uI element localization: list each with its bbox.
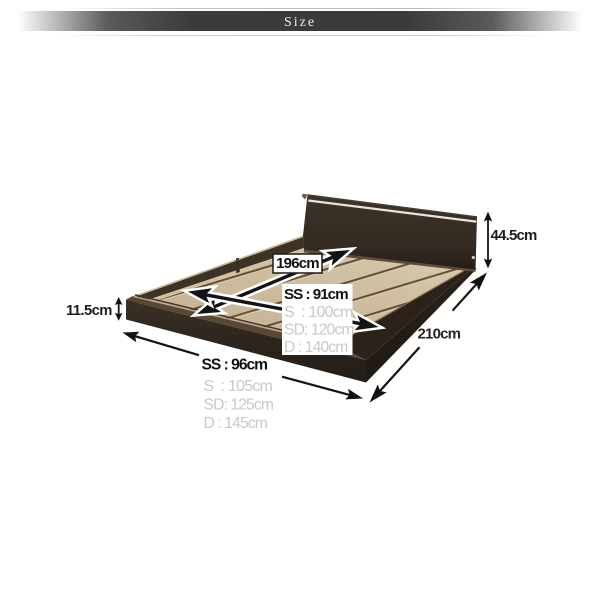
svg-text:D : 140cm: D : 140cm (284, 339, 348, 356)
svg-text:SS : 96cm: SS : 96cm (202, 357, 268, 374)
svg-text:S : 100cm: S : 100cm (284, 304, 353, 321)
svg-text:S : 105cm: S : 105cm (204, 378, 273, 395)
svg-text:SD: 120cm: SD: 120cm (284, 322, 354, 339)
svg-text:D : 145cm: D : 145cm (204, 415, 268, 432)
svg-text:210cm: 210cm (418, 326, 461, 343)
svg-text:SD: 125cm: SD: 125cm (204, 397, 274, 414)
svg-text:44.5cm: 44.5cm (491, 227, 538, 244)
svg-text:SS : 91cm: SS : 91cm (284, 286, 348, 303)
svg-text:196cm: 196cm (276, 255, 319, 272)
svg-text:11.5cm: 11.5cm (66, 303, 112, 319)
